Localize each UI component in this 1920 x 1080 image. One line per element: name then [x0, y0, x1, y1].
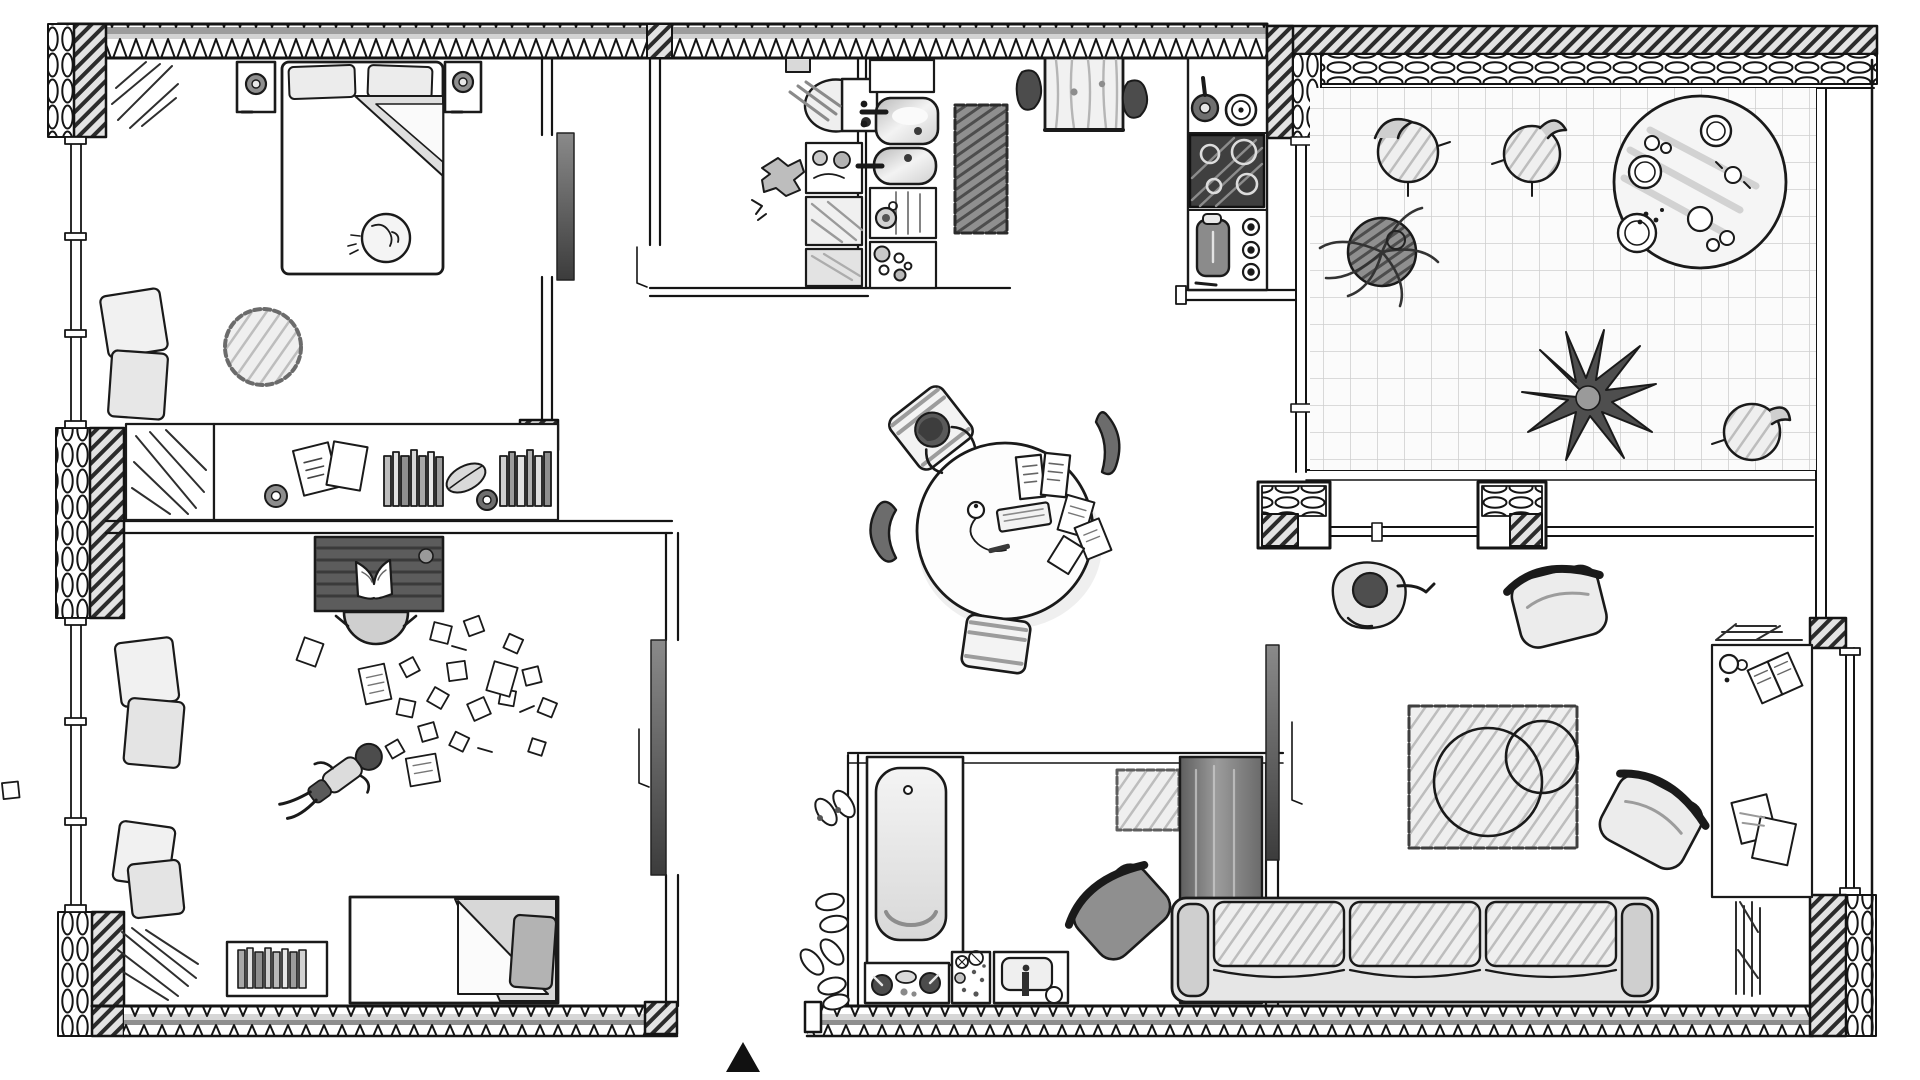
wall-dining-living — [1258, 482, 1813, 548]
kitchen-counter-column — [1188, 58, 1267, 290]
corner-hatch-scribble — [112, 62, 178, 128]
cup — [1720, 655, 1738, 673]
wall-top — [58, 24, 1267, 58]
office-desk — [315, 537, 443, 611]
kitchen — [858, 58, 1267, 290]
small-wooden-table — [1045, 58, 1123, 130]
armchair-light-1 — [1504, 558, 1613, 652]
curved-chair-right — [1096, 412, 1119, 474]
floor-book-rack — [227, 942, 327, 996]
wall-bottom — [92, 1002, 1813, 1036]
upper-cabinet — [870, 60, 934, 92]
patio-round-table — [1614, 96, 1786, 268]
bath-mat — [1117, 770, 1179, 830]
living-door-leaf — [1266, 645, 1279, 860]
entrance-triangle-marker — [726, 1042, 760, 1072]
window-desk — [1712, 645, 1812, 897]
laundry-boxes — [806, 143, 862, 286]
person-lying — [271, 728, 396, 839]
wall-bedroom-right — [542, 58, 552, 450]
armchair-dark — [1062, 853, 1181, 970]
double-sink — [858, 98, 938, 184]
desk-chair — [336, 612, 416, 644]
wc-room — [752, 58, 877, 286]
single-bed — [350, 897, 558, 1003]
bath-vanity — [865, 963, 949, 1003]
person-head — [1353, 573, 1387, 607]
person-sitting — [1333, 562, 1434, 628]
nightstand-left — [237, 62, 275, 112]
floor-plan-drawing — [0, 0, 1920, 1080]
wall-left — [48, 24, 124, 1036]
office-door-leaf — [651, 640, 666, 875]
bedroom-door-leaf — [557, 133, 574, 280]
curved-chair-left — [870, 502, 896, 562]
bed-pillow — [510, 915, 557, 990]
entrance-hall — [796, 787, 859, 1012]
bedroom-main — [100, 62, 558, 520]
radiator-scribble — [118, 928, 198, 1000]
wardrobe — [126, 424, 214, 520]
radiator-scribble-top — [1716, 624, 1802, 640]
shelf-unit — [214, 424, 558, 520]
toiletries-tray — [952, 951, 990, 1003]
floor-plan-page: Hand-drawn apartment floor plan, top vie… — [0, 0, 1920, 1080]
cooktop — [1190, 135, 1264, 207]
wall-vent — [786, 58, 810, 72]
round-rug — [225, 309, 301, 385]
slippers — [796, 787, 859, 1012]
sofa — [1172, 898, 1658, 1002]
paper — [326, 441, 367, 490]
window-left-office — [65, 618, 86, 912]
kettle — [1197, 214, 1229, 276]
clothes-pile — [762, 158, 804, 196]
radiator-scribble-bottom — [1736, 902, 1760, 996]
scattered-papers — [2, 616, 557, 799]
washbasin — [994, 952, 1068, 1003]
dining-area — [870, 382, 1119, 674]
kitchen-runner-rug — [955, 105, 1007, 233]
floor-cushions — [100, 288, 169, 420]
books-row — [500, 450, 551, 506]
spoon — [1196, 283, 1216, 285]
wall-right-facade — [1810, 60, 1876, 1036]
control-knobs — [1243, 219, 1259, 280]
armchair-light-2 — [1590, 763, 1714, 877]
double-bed — [282, 62, 443, 274]
nightstand-right — [445, 62, 481, 112]
patio — [1310, 88, 1816, 470]
pot — [1226, 95, 1256, 125]
worktop — [870, 188, 936, 288]
window-left-bedroom — [65, 137, 86, 428]
bathtub — [867, 757, 963, 965]
books-row — [384, 450, 443, 506]
living-rug — [1409, 706, 1578, 848]
floor-cushions-office — [112, 637, 185, 919]
wall-bedroom-office-divider — [106, 521, 672, 533]
striped-chair-bottom — [961, 614, 1032, 674]
